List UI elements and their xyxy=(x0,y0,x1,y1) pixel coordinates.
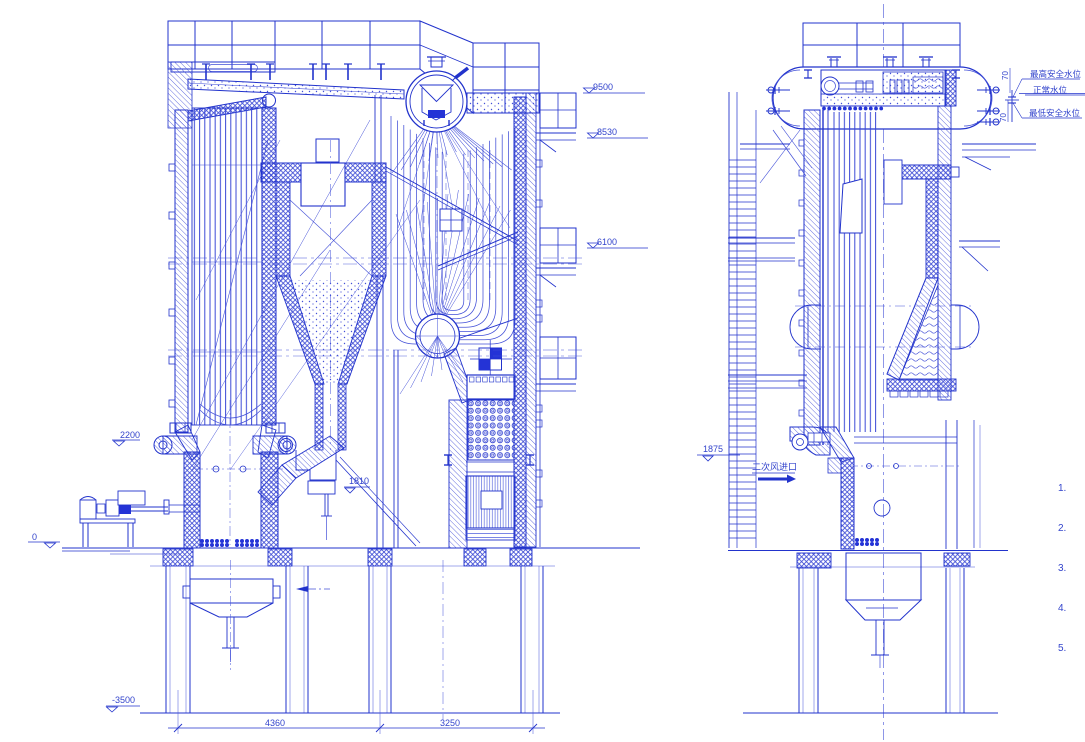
svg-text:8530: 8530 xyxy=(597,127,617,137)
svg-text:4.: 4. xyxy=(1058,603,1066,614)
svg-text:1.: 1. xyxy=(1058,483,1066,494)
svg-text:0: 0 xyxy=(32,532,37,542)
svg-text:4360: 4360 xyxy=(265,718,285,728)
svg-text:最高安全水位: 最高安全水位 xyxy=(1030,69,1082,79)
svg-text:-3500: -3500 xyxy=(112,695,135,705)
svg-text:正常水位: 正常水位 xyxy=(1033,85,1068,95)
svg-text:最低安全水位: 最低安全水位 xyxy=(1029,108,1081,118)
svg-text:9500: 9500 xyxy=(593,82,613,92)
svg-text:70: 70 xyxy=(1001,71,1010,80)
svg-text:2.: 2. xyxy=(1058,523,1066,534)
svg-text:5.: 5. xyxy=(1058,643,1066,654)
svg-text:1875: 1875 xyxy=(703,444,723,454)
svg-text:6100: 6100 xyxy=(597,237,617,247)
svg-text:2200: 2200 xyxy=(120,430,140,440)
svg-text:70: 70 xyxy=(999,113,1008,122)
svg-text:3.: 3. xyxy=(1058,563,1066,574)
svg-text:二次风进口: 二次风进口 xyxy=(752,461,797,472)
